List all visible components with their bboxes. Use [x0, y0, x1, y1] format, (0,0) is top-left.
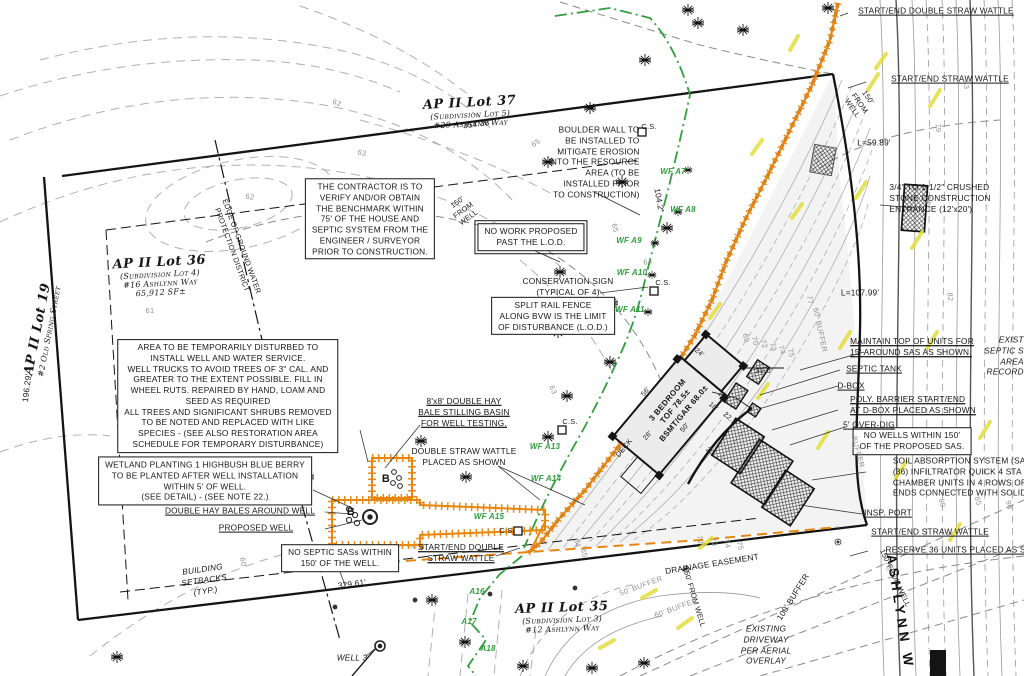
wetland-planting-note: WETLAND PLANTING 1 HIGHBUSH BLUE BERRYTO… [98, 456, 312, 505]
building-setbacks-label: BUILDINGSETBACKS(TYP.) [179, 561, 229, 599]
map-label: 65 [609, 222, 621, 233]
crushed-stone-entrance: 3/4" TO 1-1/2" CRUSHEDSTONE CONSTRUCTION… [889, 182, 990, 214]
map-label: 65 [530, 136, 543, 149]
from-well-150-topright: 150'FROMWELL [842, 85, 879, 120]
lot-35-label: AP II Lot 35(Subdivision Lot 3)#12 Ashly… [515, 599, 610, 635]
map-label: 73 [708, 536, 720, 547]
dim-329: 329.61' [337, 577, 366, 591]
wf-a17: A16 [469, 587, 484, 597]
from-well-150-center: 150'FROMWELL [445, 192, 480, 229]
wf-a7: WF A7 [660, 167, 686, 177]
hay-bale-basin-label: 8'x8' DOUBLE HAYBALE STILLING BASINFOR W… [418, 396, 509, 428]
map-label: 75 [785, 347, 797, 358]
lot-36-label: AP II Lot 36(Subdivision Lot 4)#16 Ashly… [112, 253, 208, 300]
buffer-100-label: 100' BUFFER [774, 572, 811, 623]
map-label: 62 [331, 97, 343, 109]
map-label: 72 [694, 534, 706, 545]
groundwater-district-label: EDGE OF GROUND WATERPROTECTION DISTRICT [211, 198, 263, 299]
map-label: 77 [804, 295, 815, 306]
wf-a9: WF A9 [616, 236, 642, 246]
wf-a18: A18 [480, 644, 495, 654]
double-straw-wattle-label: DOUBLE STRAW WATTLEPLACED AS SHOWN [412, 446, 517, 468]
no-septic-note: NO SEPTIC SASs WITHIN150' OF THE WELL. [281, 544, 399, 572]
curve-length-107: L=107.99' [841, 288, 879, 299]
wf-a8: WF A8 [670, 205, 696, 215]
exist-septic-record: EXISTSEPTIC SAREARECORD [984, 334, 1023, 377]
double-hay-bales-label: DOUBLE HAY BALES AROUND WELL [165, 506, 315, 517]
deck-label: DECK [613, 437, 634, 460]
dim-104: 104.2' [652, 187, 667, 212]
no-work-note: NO WORK PROPOSEDPAST THE L.O.D. [477, 223, 584, 251]
map-label: 79 [933, 123, 943, 133]
map-label: 50' BUFFER [618, 574, 664, 599]
map-label: 60' BUFFER [811, 307, 830, 353]
bale-b2: B [347, 505, 355, 519]
map-label: 80 [936, 497, 948, 508]
start-end-double-straw-wattle-bottom: START/END DOUBLESTRAW WATTLE [418, 542, 504, 564]
proposed-well-label: PROPOSED WELL [219, 523, 294, 534]
conservation-sign-label: CONSERVATION SIGN(TYPICAL OF 4) [523, 276, 614, 298]
site-plan: THE CONTRACTOR IS TOVERIFY AND/OR OBTAIN… [0, 0, 1024, 676]
soil-absorption-note: SOIL ABSORPTION SYSTEM (SAS(36) INFILTRA… [893, 455, 1024, 498]
temporary-disturbance-note: AREA TO BE TEMPORARILY DISTURBED TOINSTA… [117, 339, 338, 453]
dim-20: 20' [703, 445, 716, 458]
d-box-label: D-BOX [837, 381, 864, 392]
wf-a14: WF A14 [531, 474, 561, 484]
map-label: 83 [961, 80, 971, 90]
cs-3: C.S. [562, 417, 577, 427]
over-dig-label: 5' OVER-DIG [843, 420, 895, 431]
map-label: 64 [643, 256, 654, 267]
map-label: 62 [245, 191, 256, 202]
well-3-label: WELL 3 [337, 653, 368, 664]
boulder-wall-note: BOULDER WALL TOBE INSTALLED TOMITIGATE E… [548, 124, 639, 199]
map-label: 82 [945, 292, 955, 302]
dim-221: 22.1' [721, 410, 739, 427]
start-end-double-straw-wattle-top: START/END DOUBLE STRAW WATTLE [858, 6, 1013, 17]
no-wells-note: NO WELLS WITHIN 150'OF THE PROPOSED SAS. [853, 427, 972, 455]
map-label: 64 [571, 537, 583, 548]
map-label: 75 [734, 540, 746, 551]
map-label: 63 [547, 384, 559, 396]
map-label: 63 [357, 147, 368, 158]
map-label: 90 [1003, 499, 1015, 510]
bale-b1: B [382, 472, 390, 486]
map-label: 78 [923, 195, 933, 205]
cs-1: C.S. [641, 122, 656, 132]
wf-a13: WF A13 [530, 442, 560, 452]
labels-layer: THE CONTRACTOR IS TOVERIFY AND/OR OBTAIN… [0, 0, 1024, 676]
dim-12: 12' [715, 389, 728, 402]
wf-a16: A17 [461, 617, 476, 627]
wf-a15: WF A15 [474, 512, 504, 522]
poly-barrier-label: POLY. BARRIER START/ENDAT D-BOX PLACED A… [850, 394, 976, 416]
map-label: 85 [972, 495, 984, 506]
start-end-straw-wattle-top: START/END STRAW WATTLE [891, 74, 1009, 85]
dim-56: 56' [639, 385, 652, 398]
dim-31: 31.0' [756, 366, 773, 376]
map-label: 65 [578, 547, 590, 558]
dim-10: 10' [706, 400, 719, 413]
map-label: 60 [237, 557, 248, 568]
lot-19-label: AP II Lot 19#2 Old Spring Street [21, 282, 62, 378]
existing-driveway-label: EXISTINGDRIVEWAYPER AERIALOVERLAY [741, 623, 792, 666]
reserve-units-label: RESERVE 36 UNITS PLACED AS SHO [886, 545, 1024, 556]
dim-24: 24' [692, 346, 705, 359]
split-rail-note: SPLIT RAIL FENCEALONG BVW IS THE LIMITOF… [491, 297, 615, 335]
lot-37-label: AP II Lot 37(Subdivision Lot 5)#20 Ashly… [422, 93, 517, 131]
map-label: 61 [145, 306, 154, 316]
wf-a11: WF A11 [615, 305, 645, 315]
dim-196: 196.29' [20, 373, 34, 402]
wf-a10: WF A10 [617, 268, 647, 278]
drainage-easement-label: DRAINAGE EASEMENT [664, 551, 759, 576]
contractor-note: THE CONTRACTOR IS TOVERIFY AND/OR OBTAIN… [305, 178, 435, 259]
septic-tank-label: SEPTIC TANK [846, 364, 902, 375]
insp-port-label: INSP. PORT [864, 508, 912, 519]
map-label: 74 [721, 538, 733, 549]
maintain-top-units: MAINTAIN TOP OF UNITS FOR15' AROUND SAS … [850, 336, 974, 358]
cs-4: C.S. [499, 526, 514, 536]
curve-length-59: L=59.89' [857, 138, 890, 149]
cs-2: C.S. [655, 278, 670, 288]
start-end-straw-wattle-right: START/END STRAW WATTLE [871, 527, 989, 538]
